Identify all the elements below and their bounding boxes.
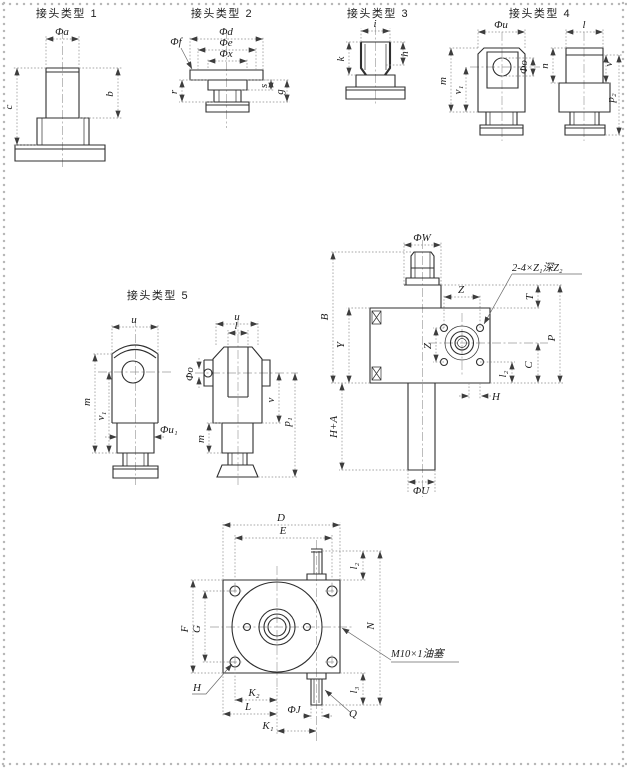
dim-label-phi-u: Φu (494, 19, 508, 31)
dim-label-p1: p₁ (281, 417, 293, 428)
engineering-drawing: 接头类型 1 Φa b c 接头类型 2 Φd (0, 0, 627, 768)
extension-lines (190, 522, 383, 734)
dim-label-l: L (244, 701, 251, 713)
joint-type-4-drawing: 接头类型 4 Φu m v₁ Φo l n v p₂ (437, 6, 622, 141)
right-view-outline (204, 347, 270, 477)
port-callout: 2-4×Z₁深Z₂ (512, 262, 563, 274)
dim-label-v1: v₁ (452, 85, 464, 94)
dim-label-v1: v₁ (95, 411, 107, 420)
drawing-sheet: 接头类型 1 Φa b c 接头类型 2 Φd (0, 0, 627, 768)
dim-label-p2: p₂ (605, 93, 617, 104)
dim-label-n: n (539, 63, 551, 69)
dim-label-t: T (524, 293, 536, 300)
dim-label-v: v (603, 61, 615, 66)
dim-label-m: m (437, 77, 449, 85)
dim-label-phi-u: ΦU (413, 485, 430, 497)
centerlines (210, 540, 352, 742)
leader-ports (484, 274, 512, 324)
dim-label-v: v (265, 397, 277, 402)
side-thread-ports (372, 311, 381, 380)
extension-lines (13, 36, 122, 145)
dim-label-y: Y (335, 340, 347, 348)
extension-lines (448, 29, 622, 135)
dim-label-f: F (179, 625, 191, 633)
dim-label-d: D (276, 512, 285, 524)
joint-type-3-title: 接头类型 3 (347, 6, 409, 20)
dim-label-g: g (274, 89, 286, 95)
dim-label-phi-o: Φo (184, 367, 196, 381)
dim-label-n: N (365, 622, 377, 631)
dim-label-phi-a: Φa (55, 26, 69, 38)
dim-label-l2: l₂ (497, 370, 509, 377)
dim-label-q: Q (349, 708, 357, 720)
dim-label-l2: l₂ (348, 562, 360, 569)
dim-label-m: m (81, 398, 93, 406)
dim-label-i: i (373, 18, 376, 30)
dim-label-m-right: m (195, 435, 207, 443)
dim-label-h-plus-a: H+A (328, 416, 340, 439)
dim-label-h: h (399, 51, 411, 57)
dim-label-l: l (582, 19, 585, 31)
extension-lines (346, 28, 406, 75)
flange-top-view-drawing: D E F G N l₂ l₃ H K₂ L ΦJ K₁ Q M10×1油塞 (179, 512, 459, 742)
joint-type-5-title: 接头类型 5 (127, 288, 189, 302)
dim-label-phi-o: Φo (518, 60, 530, 74)
leader-q (325, 690, 350, 712)
dim-label-l: l (234, 320, 237, 332)
left-view-outline (112, 345, 158, 478)
joint-type-2-title: 接头类型 2 (191, 6, 253, 20)
dim-label-phi-f: Φf (170, 36, 183, 48)
joint-type-1-title: 接头类型 1 (36, 6, 98, 20)
dim-label-c: C (523, 361, 535, 369)
joint-type-4-title: 接头类型 4 (509, 6, 571, 20)
dim-label-s: s (258, 84, 270, 88)
dim-label-k: k (335, 55, 347, 61)
outline-detail-2 (232, 453, 243, 465)
outline-detail (42, 118, 84, 145)
dim-label-b: B (319, 313, 331, 320)
outline-detail (490, 112, 513, 125)
dim-label-k2: K₂ (247, 687, 259, 699)
dim-label-h: H (491, 391, 501, 403)
leader-plug (342, 628, 391, 660)
dim-label-r: r (168, 89, 180, 94)
dim-label-phi-j: ΦJ (287, 704, 301, 716)
outline (15, 68, 105, 161)
dim-label-z-horizontal: Z (458, 284, 465, 296)
dim-label-l3: l₃ (348, 686, 360, 693)
joint-type-5-drawing: 接头类型 5 u m v₁ Φu₁ (81, 288, 298, 485)
dim-label-c: c (3, 104, 15, 109)
dim-label-z-vertical: Z (422, 342, 434, 349)
dim-label-b: b (104, 91, 116, 97)
dim-label-phi-w: ΦW (413, 232, 431, 244)
joint-type-2-drawing: 接头类型 2 Φd Φe Φx Φf r s g (168, 6, 290, 128)
dim-label-h: H (192, 682, 202, 694)
dim-label-u: u (131, 314, 137, 326)
dim-label-p: P (546, 334, 558, 342)
extension-lines-left (92, 324, 158, 453)
cylinder-body-drawing: ΦW B Y H+A ΦU Z Z T P C l₂ H 2-4×Z₁深Z₂ (319, 232, 582, 497)
plug-callout: M10×1油塞 (390, 648, 445, 660)
joint-type-1-drawing: 接头类型 1 Φa b c (3, 6, 122, 167)
outline-detail (219, 90, 236, 102)
dim-label-phi-u1: Φu₁ (160, 424, 178, 436)
dim-label-e: E (279, 525, 287, 537)
dim-label-k1: K₁ (261, 720, 273, 732)
side-view-outline (559, 48, 610, 135)
outline-detail-2 (574, 112, 595, 125)
dim-label-g: G (191, 625, 203, 633)
joint-type-3-drawing: 接头类型 3 i k h (335, 6, 411, 104)
extension-lines-right (206, 321, 298, 477)
dim-label-phi-x: Φx (219, 48, 232, 60)
